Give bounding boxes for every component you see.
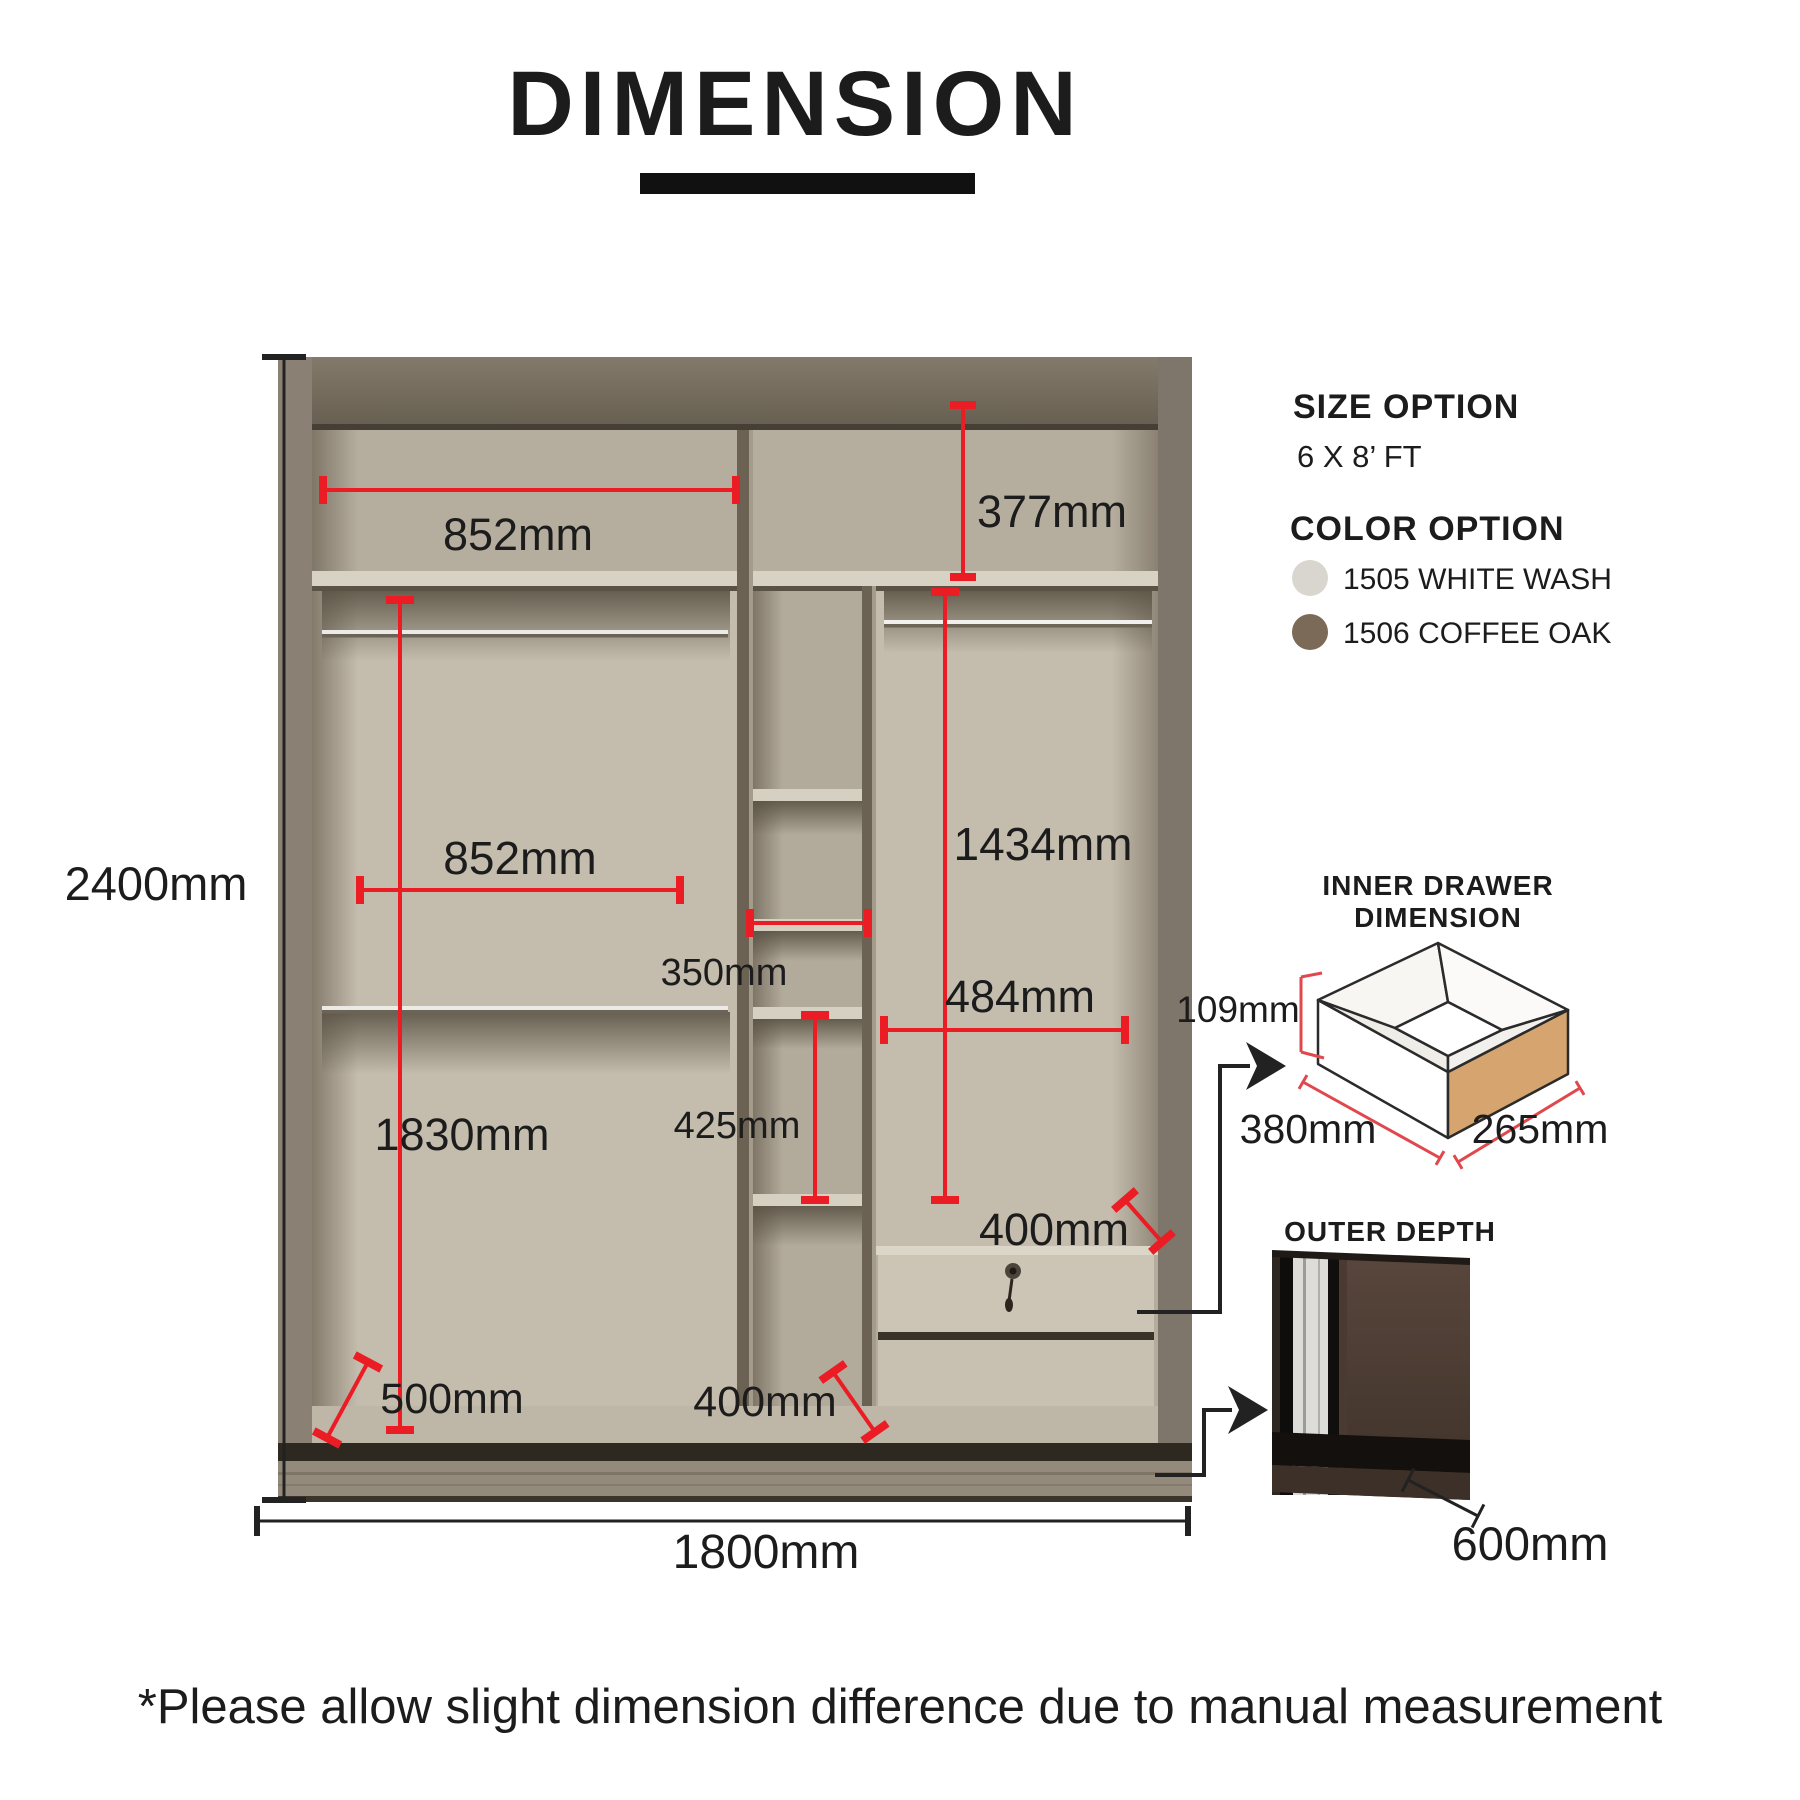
color-swatch-coffee-oak <box>1292 614 1328 650</box>
dim-label-left-section-width: 852mm <box>443 832 596 884</box>
hanging-rod-right <box>884 622 1152 624</box>
dim-label-drawer-depth: 265mm <box>1472 1106 1609 1152</box>
size-option-value: 6 X 8’ FT <box>1297 439 1422 474</box>
hanging-rod-left-upper <box>322 632 728 634</box>
sliding-track <box>278 1443 1192 1461</box>
dim-label-top-shelf-width: 852mm <box>443 509 593 560</box>
cubby-shelf <box>753 789 862 835</box>
top-shelf <box>312 571 1158 586</box>
dim-label-top-right-height: 377mm <box>977 486 1127 537</box>
outer-depth-diagram: OUTER DEPTH 600mm <box>1272 1216 1608 1570</box>
inner-drawer-heading-line1: INNER DRAWER <box>1322 870 1553 901</box>
arrowhead-icon <box>1228 1386 1268 1434</box>
arrowhead-icon <box>1246 1042 1286 1090</box>
inner-drawer-diagram: INNER DRAWER DIMENSION 109mm 3 <box>1176 870 1608 1169</box>
dim-label-drawer-height: 109mm <box>1176 989 1299 1030</box>
dim-label-right-section-width: 484mm <box>945 971 1095 1022</box>
options-panel: SIZE OPTION 6 X 8’ FT COLOR OPTION 1505 … <box>1290 388 1612 650</box>
dim-label-drawer-width: 380mm <box>1240 1106 1377 1152</box>
color-swatch-white-wash <box>1292 560 1328 596</box>
page-title: DIMENSION <box>507 53 1082 155</box>
title-underline <box>640 173 975 194</box>
dim-label-bottom-cubby-depth: 400mm <box>693 1378 836 1426</box>
hanging-rod-left-lower <box>322 1008 728 1010</box>
footnote: *Please allow slight dimension differenc… <box>138 1680 1663 1734</box>
wardrobe-top-frame <box>278 357 1192 428</box>
dim-label-cubby-height: 425mm <box>674 1105 801 1147</box>
color-label-white-wash: 1505 WHITE WASH <box>1343 563 1612 596</box>
dim-label-outer-depth: 600mm <box>1452 1517 1609 1570</box>
dim-label-left-depth: 500mm <box>380 1375 523 1423</box>
plinth <box>278 1461 1192 1498</box>
dim-label-overall-height: 2400mm <box>65 857 248 910</box>
inner-drawer-heading-line2: DIMENSION <box>1354 902 1522 933</box>
dimension-infographic: DIMENSION <box>0 0 1800 1800</box>
dim-label-left-hanging-height: 1830mm <box>374 1109 549 1160</box>
color-label-coffee-oak: 1506 COFFEE OAK <box>1343 617 1611 650</box>
size-option-heading: SIZE OPTION <box>1293 388 1519 426</box>
dim-label-overall-width: 1800mm <box>673 1526 860 1579</box>
dim-label-right-hanging-height: 1434mm <box>954 818 1133 870</box>
outer-depth-photo <box>1272 1250 1470 1500</box>
outer-depth-heading: OUTER DEPTH <box>1284 1216 1496 1247</box>
color-option-heading: COLOR OPTION <box>1290 510 1565 548</box>
dim-label-drawer-section-width: 400mm <box>979 1204 1129 1255</box>
dim-label-cubby-width: 350mm <box>661 952 788 994</box>
